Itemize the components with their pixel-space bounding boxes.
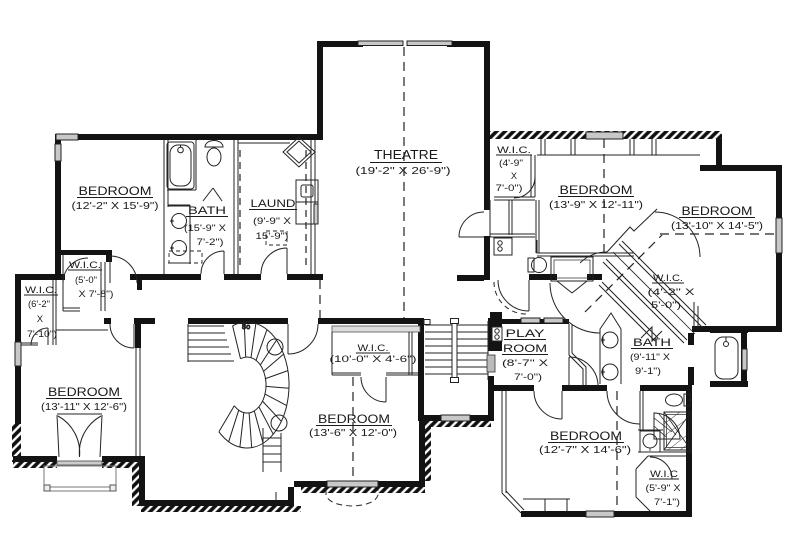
svg-text:W.I.C.: W.I.C. — [69, 260, 101, 270]
svg-text:(10'-0" X 4'-6"): (10'-0" X 4'-6") — [330, 354, 417, 364]
svg-text:BEDROOM: BEDROOM — [79, 186, 152, 198]
svg-text:7'-10"): 7'-10") — [27, 329, 57, 339]
svg-text:(4'-9": (4'-9" — [499, 158, 523, 168]
svg-text:W.I.C.: W.I.C. — [497, 145, 531, 155]
svg-text:BATH: BATH — [188, 205, 226, 217]
svg-text:LAUND: LAUND — [251, 198, 296, 210]
svg-text:15'-9"): 15'-9") — [256, 231, 289, 241]
svg-text:ROOM: ROOM — [503, 343, 547, 355]
svg-text:7'-0"): 7'-0") — [514, 372, 542, 382]
svg-text:W.I.C.: W.I.C. — [25, 285, 57, 295]
svg-text:7'-1"): 7'-1") — [654, 497, 680, 507]
svg-text:(13'-9" X 12'-11"): (13'-9" X 12'-11") — [549, 200, 643, 211]
svg-text:(6'-2": (6'-2" — [28, 299, 50, 309]
svg-text:X: X — [511, 171, 517, 181]
svg-text:BEDROOM: BEDROOM — [682, 206, 753, 218]
svg-text:5'-0"): 5'-0") — [651, 300, 681, 310]
svg-text:THEATRE: THEATRE — [374, 147, 438, 162]
svg-text:(15'-9" X: (15'-9" X — [184, 223, 226, 233]
svg-text:(9'-11" X: (9'-11" X — [630, 352, 670, 362]
svg-text:(13'-11" X 12'-6"): (13'-11" X 12'-6") — [41, 402, 127, 413]
svg-text:(4'-2" X: (4'-2" X — [648, 287, 695, 297]
svg-text:X: X — [37, 314, 43, 324]
svg-text:9'-1"): 9'-1") — [635, 366, 661, 376]
svg-text:7'-0"): 7'-0") — [496, 183, 523, 193]
svg-text:8o: 8o — [242, 324, 250, 331]
svg-text:BEDROOM: BEDROOM — [560, 185, 633, 197]
svg-text:(5'-0": (5'-0" — [75, 275, 97, 285]
svg-text:X 7'-8"): X 7'-8") — [79, 289, 114, 299]
svg-text:(8'-7" X: (8'-7" X — [502, 358, 548, 368]
svg-text:(12'-2" X 15'-9"): (12'-2" X 15'-9") — [72, 201, 159, 212]
svg-text:BEDROOM: BEDROOM — [48, 387, 120, 399]
svg-text:W.I.C.: W.I.C. — [653, 273, 683, 283]
svg-text:BEDROOM: BEDROOM — [318, 414, 390, 426]
svg-text:BEDROOM: BEDROOM — [550, 431, 622, 443]
svg-text:7'-2"): 7'-2") — [197, 237, 224, 247]
svg-text:W.I.C.: W.I.C. — [358, 343, 389, 353]
svg-text:(9'-9" X: (9'-9" X — [253, 216, 291, 226]
svg-text:(5'-9" X: (5'-9" X — [646, 483, 681, 493]
svg-text:(13'-10" X 14'-5"): (13'-10" X 14'-5") — [671, 221, 763, 232]
svg-text:BATH: BATH — [633, 337, 671, 349]
svg-text:W.I.C: W.I.C — [650, 469, 678, 479]
svg-text:PLAY: PLAY — [506, 328, 545, 340]
svg-text:(19'-2" X 26'-9"): (19'-2" X 26'-9") — [356, 166, 451, 177]
